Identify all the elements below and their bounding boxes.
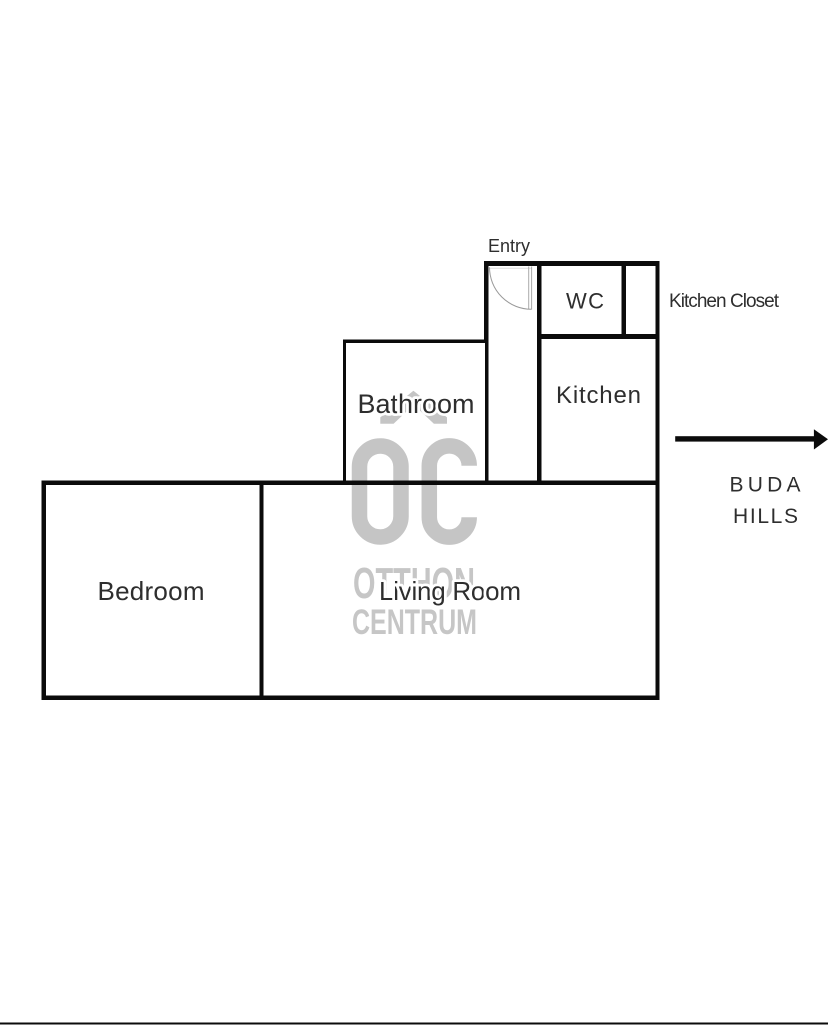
svg-text:Entry: Entry — [488, 236, 530, 256]
svg-text:Kitchen: Kitchen — [556, 382, 641, 409]
svg-text:HILLS: HILLS — [733, 505, 798, 528]
svg-text:Bathroom: Bathroom — [358, 389, 475, 419]
svg-text:Living Room: Living Room — [379, 576, 521, 606]
svg-text:CENTRUM: CENTRUM — [352, 603, 477, 642]
svg-text:Kitchen Closet: Kitchen Closet — [669, 291, 780, 312]
svg-text:WC: WC — [566, 289, 604, 314]
svg-text:Bedroom: Bedroom — [98, 576, 205, 606]
